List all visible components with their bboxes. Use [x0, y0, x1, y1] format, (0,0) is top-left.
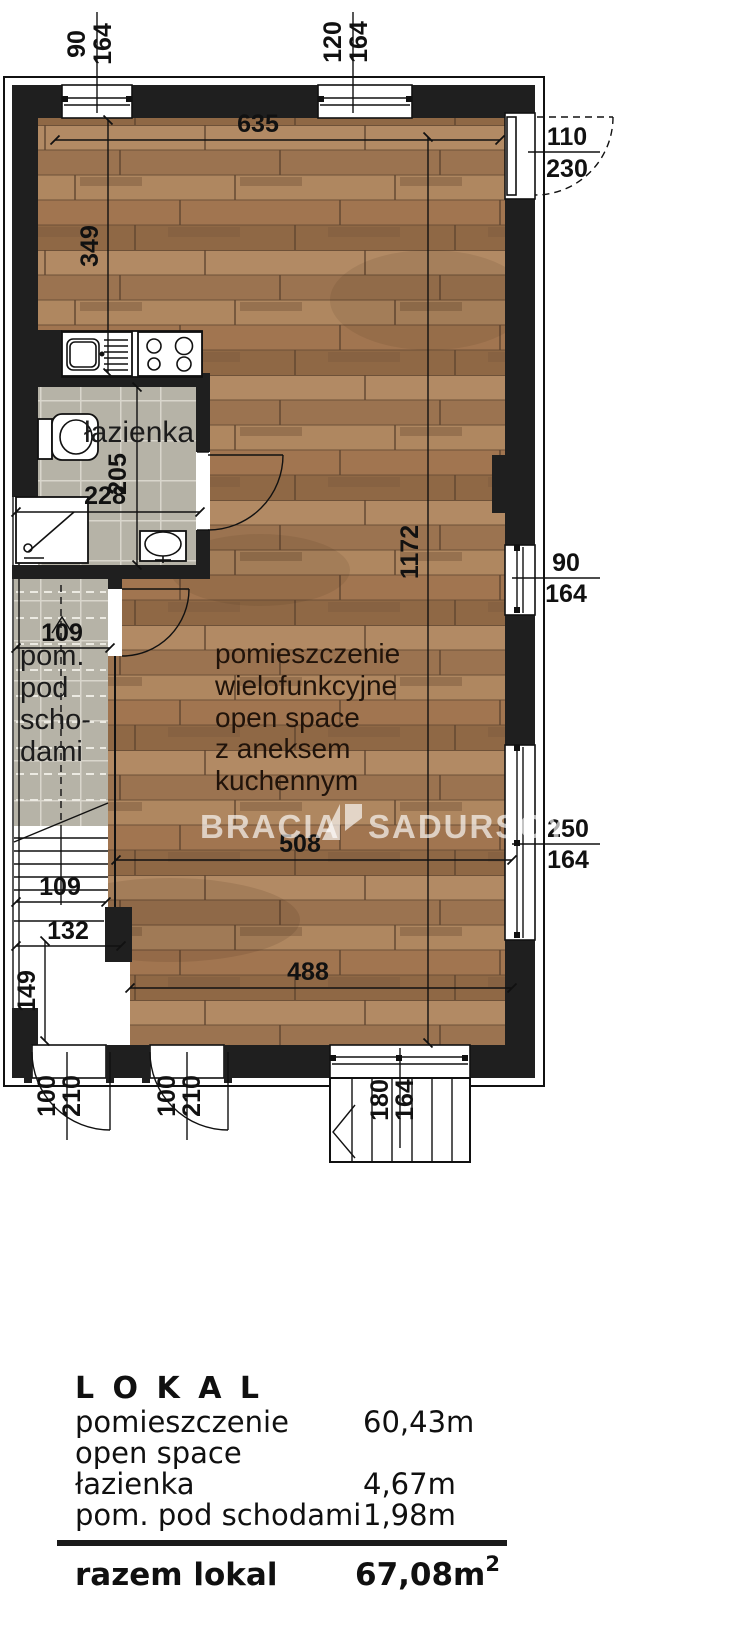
wall-left: [12, 85, 38, 497]
wall-right-pillar: [492, 455, 506, 513]
dim-value: 90: [63, 30, 91, 58]
watermark-text-right: SADURSCY: [368, 808, 569, 845]
kitchen-sink-icon: [62, 332, 132, 376]
dim-value: 164: [89, 23, 117, 65]
main-room-label-line: z aneksem: [215, 733, 350, 764]
dim-value: 164: [345, 21, 373, 63]
wall-bathroom-right-upper: [196, 373, 210, 452]
wall-understairs-stub: [108, 579, 122, 589]
dim-value: 90: [552, 549, 580, 577]
table-row-label: łazienka: [75, 1467, 195, 1501]
table-row-value: 1,98m: [363, 1498, 456, 1532]
dim-value: 164: [547, 846, 589, 874]
table-total-label: razem lokal: [75, 1557, 277, 1593]
dim-value: 210: [178, 1075, 206, 1117]
wall-hall-pillar: [105, 907, 132, 962]
floor-plan: 90 164 120 164 635 349 110 230 228 205: [0, 0, 751, 1639]
dim-value: 349: [76, 225, 104, 267]
wall-left-corner-stub: [12, 1008, 38, 1048]
kitchen-fixtures: [62, 331, 202, 377]
dim-value: 205: [104, 453, 132, 495]
washbasin-icon: [140, 531, 186, 563]
wall-kitchen-stub: [38, 330, 62, 377]
table-row-label: pomieszczenie: [75, 1405, 289, 1439]
dim-value: 488: [287, 958, 329, 986]
understairs-label-line: scho-: [20, 704, 91, 736]
wall-bathroom-bottom: [12, 565, 210, 579]
table-row-value: 60,43m: [363, 1405, 474, 1439]
table-total-superscript: 2: [485, 1552, 500, 1576]
dim-value: 210: [58, 1075, 86, 1117]
understairs-label-line: pod: [20, 672, 68, 704]
understairs-label-line: pom.: [20, 640, 84, 672]
table-row-label: pom. pod schodami: [75, 1498, 361, 1532]
dim-value: 164: [545, 580, 587, 608]
stove-icon: [138, 332, 202, 376]
dim-value: 164: [391, 1079, 419, 1121]
dim-value: 132: [47, 917, 89, 945]
main-room-label-line: pomieszczenie: [215, 638, 400, 669]
bathroom-label: łazienka: [84, 416, 194, 449]
dim-value: 180: [366, 1079, 394, 1121]
shower-icon: [16, 497, 88, 563]
dim-value: 1172: [396, 525, 424, 579]
dim-value: 635: [237, 110, 279, 138]
understairs-label-line: dami: [20, 736, 83, 768]
main-room-label-line: wielofunkcyjne: [214, 670, 397, 701]
wall-bathroom-right-lower: [196, 530, 210, 565]
dim-value: 149: [13, 970, 41, 1012]
screenshot-root: 90 164 120 164 635 349 110 230 228 205: [0, 0, 751, 1639]
dim-value: 230: [546, 155, 588, 183]
main-room-label-line: open space: [215, 702, 360, 733]
table-row-label: open space: [75, 1436, 242, 1470]
watermark-text-left: BRACIA: [200, 808, 340, 845]
window-top-2: [318, 85, 412, 118]
table-row-value: 4,67m: [363, 1467, 456, 1501]
window-right-1: [505, 545, 535, 615]
table-total-value: 67,08m2: [355, 1552, 500, 1593]
table-total-number: 67,08m: [355, 1557, 485, 1593]
dim-value: 100: [33, 1075, 61, 1117]
main-room-label-line: kuchennym: [215, 765, 358, 796]
dim-value: 109: [39, 873, 81, 901]
watermark: BRACIA SADURSCY: [200, 804, 569, 845]
dim-value: 100: [153, 1075, 181, 1117]
dim-value: 110: [547, 123, 587, 151]
wood-shade: [330, 250, 530, 350]
dim-value: 120: [319, 21, 347, 63]
table-divider: [57, 1540, 507, 1546]
table-title: L O K A L: [75, 1371, 263, 1406]
